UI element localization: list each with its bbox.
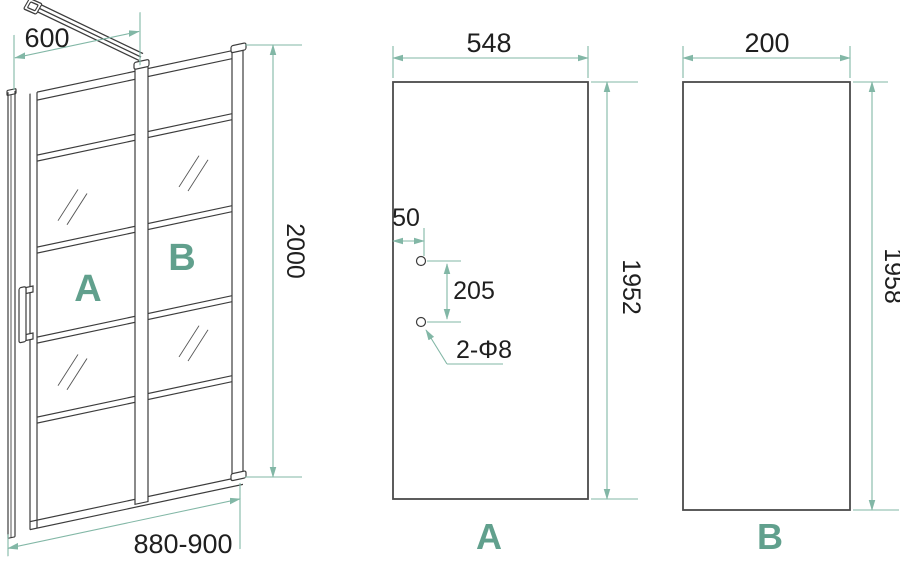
wall-profile [7,89,16,539]
panel-b-detail-view: 200 1958 B [683,28,900,557]
assembled-view-geometry [7,0,246,563]
assembled-view: 600 2000 880-900 A B [7,0,309,563]
panel-a-label: A [476,516,502,557]
dim-880-900-text: 880-900 [133,529,232,559]
center-frame-member [134,59,149,504]
panel-b-label: B [757,516,783,557]
dim-200-text: 200 [744,28,789,58]
dim-2000-text: 2000 [281,223,309,279]
drill-hole-top [417,257,426,266]
assembled-panel-b-label: B [168,237,195,279]
technical-drawing-page: 600 2000 880-900 A B 548 1952 50 [0,0,900,563]
dim-1958-text: 1958 [879,248,900,304]
drill-hole-bottom [417,318,426,327]
dim-1952-text: 1952 [617,259,645,315]
dim-548-text: 548 [466,28,511,58]
dim-205-text: 205 [453,277,495,305]
panel-a-detail-view: 548 1952 50 205 2-Φ8 A [392,28,645,557]
right-frame-member [231,43,246,481]
panel-b-outline [683,82,850,510]
shower-door-drawing: 600 2000 880-900 A B 548 1952 50 [0,0,900,563]
hole-note-text: 2-Φ8 [456,336,512,364]
dim-600-text: 600 [24,23,69,53]
assembled-panel-a-label: A [74,268,101,310]
dim-50-text: 50 [392,204,420,232]
door-handle [19,285,33,343]
